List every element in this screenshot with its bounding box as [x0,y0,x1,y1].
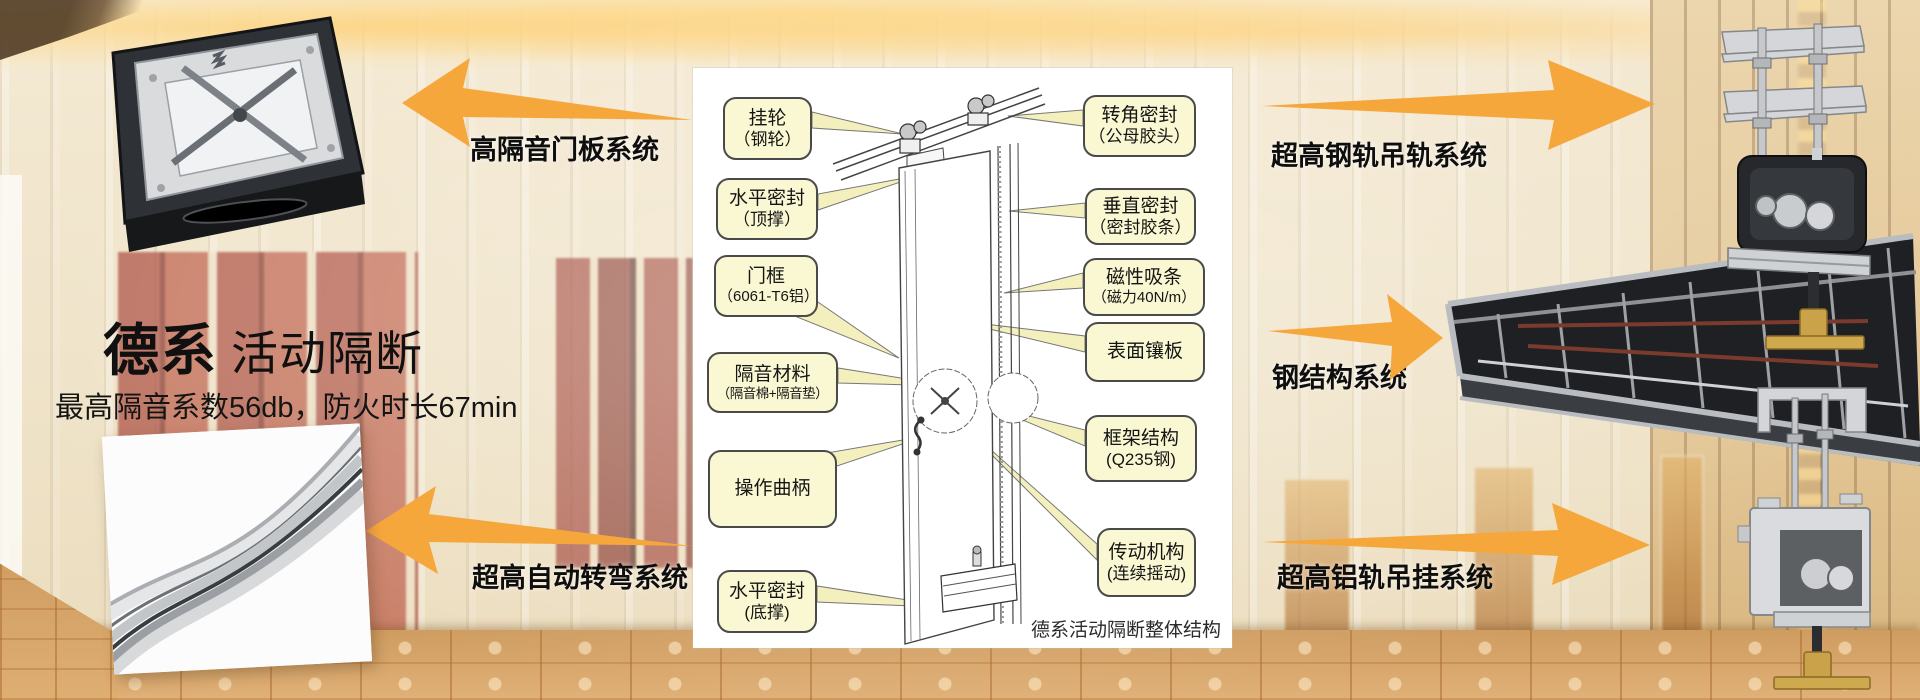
callout-vertical-seal: 垂直密封 （密封胶条） [1085,188,1196,245]
callout-surface-panel: 表面镶板 [1085,322,1205,382]
photo-door-panel-mechanism [95,8,375,253]
callout-magnetic-strip: 磁性吸条 （磁力40N/m） [1083,258,1205,316]
callout-hanging-wheel: 挂轮 （钢轮） [723,97,812,160]
callout-horizontal-seal-bottom: 水平密封 (底撑) [717,570,817,633]
callout-frame-structure: 框架结构 (Q235钢) [1085,415,1197,482]
callout-drive-mechanism: 传动机构 (连续摇动) [1097,528,1196,597]
photo-steel-rail-hanger [1698,6,1878,351]
diagram-caption: 德系活动隔断整体结构 [1031,615,1216,642]
arrow-right-bottom-icon [1262,503,1650,585]
photo-alu-rail-hanger [1728,380,1888,692]
arrow-left-top-icon [402,58,692,147]
structure-diagram-panel: 挂轮 （钢轮） 水平密封 （顶撑） 门框 （6061-T6铝） 隔音材料 （隔音… [693,68,1232,648]
callout-horizontal-seal-top: 水平密封 （顶撑） [716,178,818,240]
arrow-left-bottom-icon [366,486,692,574]
callout-door-frame: 门框 （6061-T6铝） [714,255,818,317]
partition-marketing-banner: 德系活动隔断 最高隔音系数56db，防火时长67min 高隔音门板系统 超高自动… [0,0,1920,700]
callout-corner-seal: 转角密封 （公母胶头） [1083,95,1196,157]
photo-curved-track-profiles [102,423,372,674]
callout-sound-insulation: 隔音材料 （隔音棉+隔音垫） [707,352,838,413]
callout-operating-crank: 操作曲柄 [708,450,837,528]
arrow-right-top-icon [1262,60,1655,150]
